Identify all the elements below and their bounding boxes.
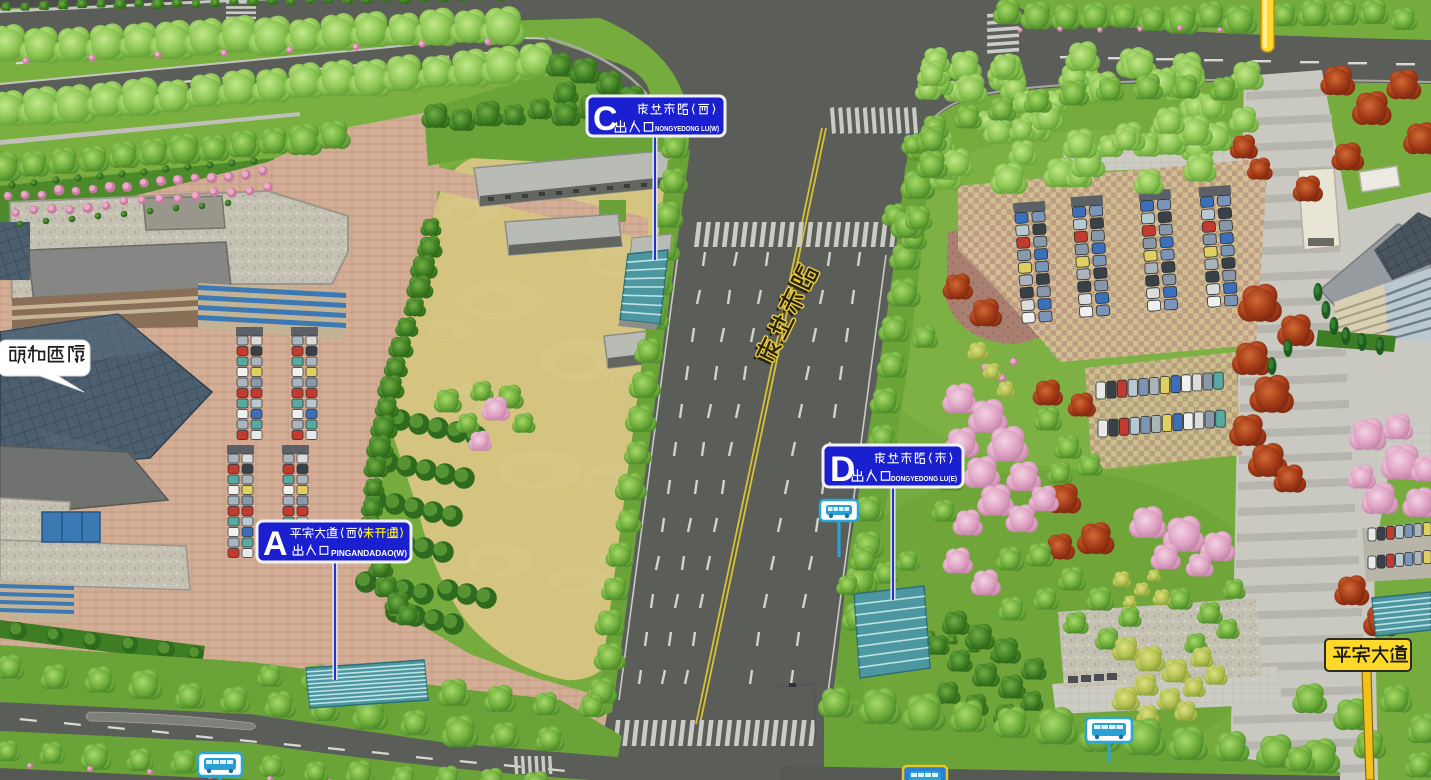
svg-text:A: A xyxy=(263,525,288,563)
svg-text:PINGANDADAO(W): PINGANDADAO(W) xyxy=(331,548,407,558)
svg-text:C: C xyxy=(593,100,618,138)
svg-text:D: D xyxy=(830,450,855,489)
svg-text:NONGYEDONG LU(W): NONGYEDONG LU(W) xyxy=(655,124,719,133)
svg-text:DONGYEDONG LU(E): DONGYEDONG LU(E) xyxy=(891,474,957,483)
